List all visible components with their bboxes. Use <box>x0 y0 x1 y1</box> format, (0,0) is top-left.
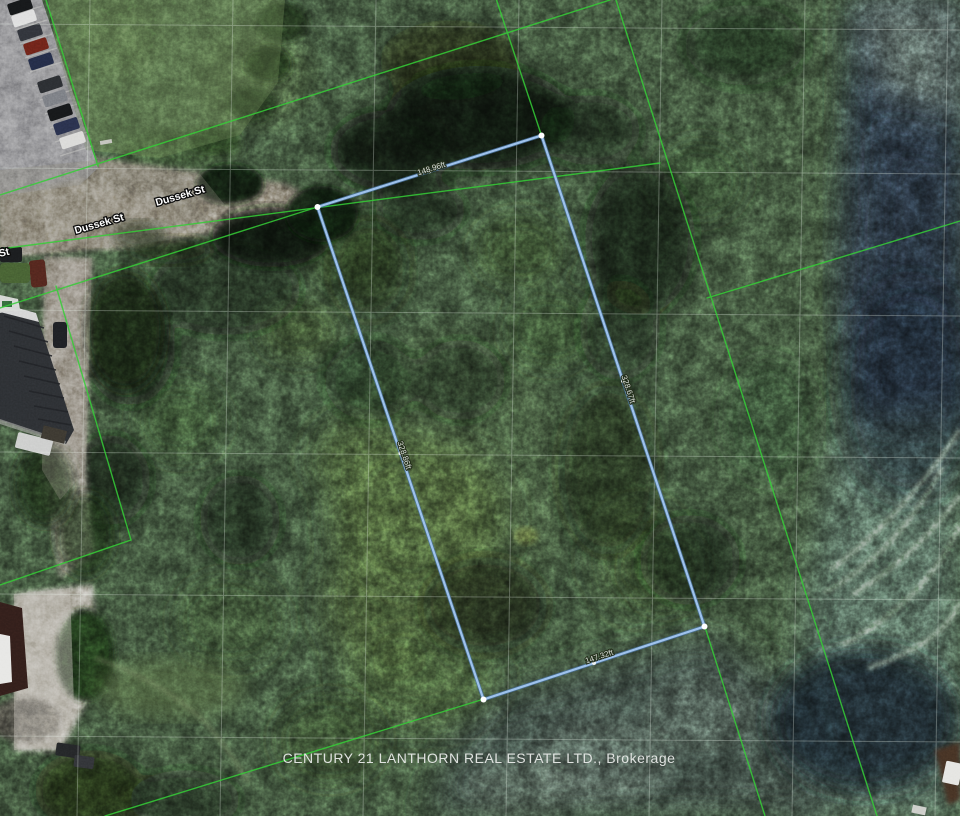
svg-text:CENTURY 21 LANTHORN REAL ESTAT: CENTURY 21 LANTHORN REAL ESTATE LTD., Br… <box>283 750 676 766</box>
